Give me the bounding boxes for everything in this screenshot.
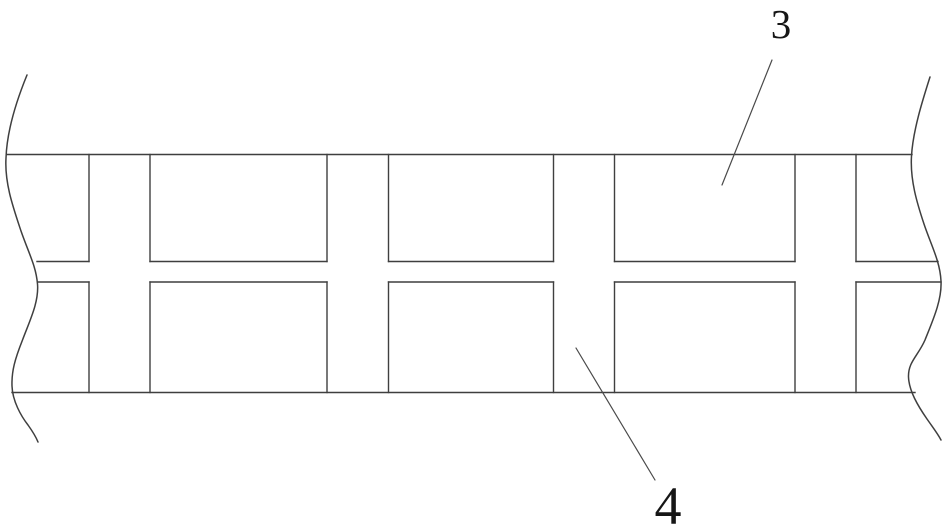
patent-figure: 3 4 <box>0 0 950 527</box>
break-line-left <box>6 75 38 442</box>
break-lines <box>6 75 941 442</box>
leader-line-3 <box>722 60 772 185</box>
top-row-blocks <box>37 155 938 262</box>
figure-stage: 3 4 <box>0 0 950 527</box>
leader-line-4 <box>576 348 655 480</box>
leader-lines <box>576 60 772 480</box>
reference-numeral-4: 4 <box>655 476 682 527</box>
break-line-right <box>908 77 941 440</box>
wall-outline <box>7 155 915 393</box>
reference-numeral-3: 3 <box>771 1 792 47</box>
figure-labels: 3 4 <box>655 1 792 527</box>
bottom-row-blocks <box>38 282 941 393</box>
